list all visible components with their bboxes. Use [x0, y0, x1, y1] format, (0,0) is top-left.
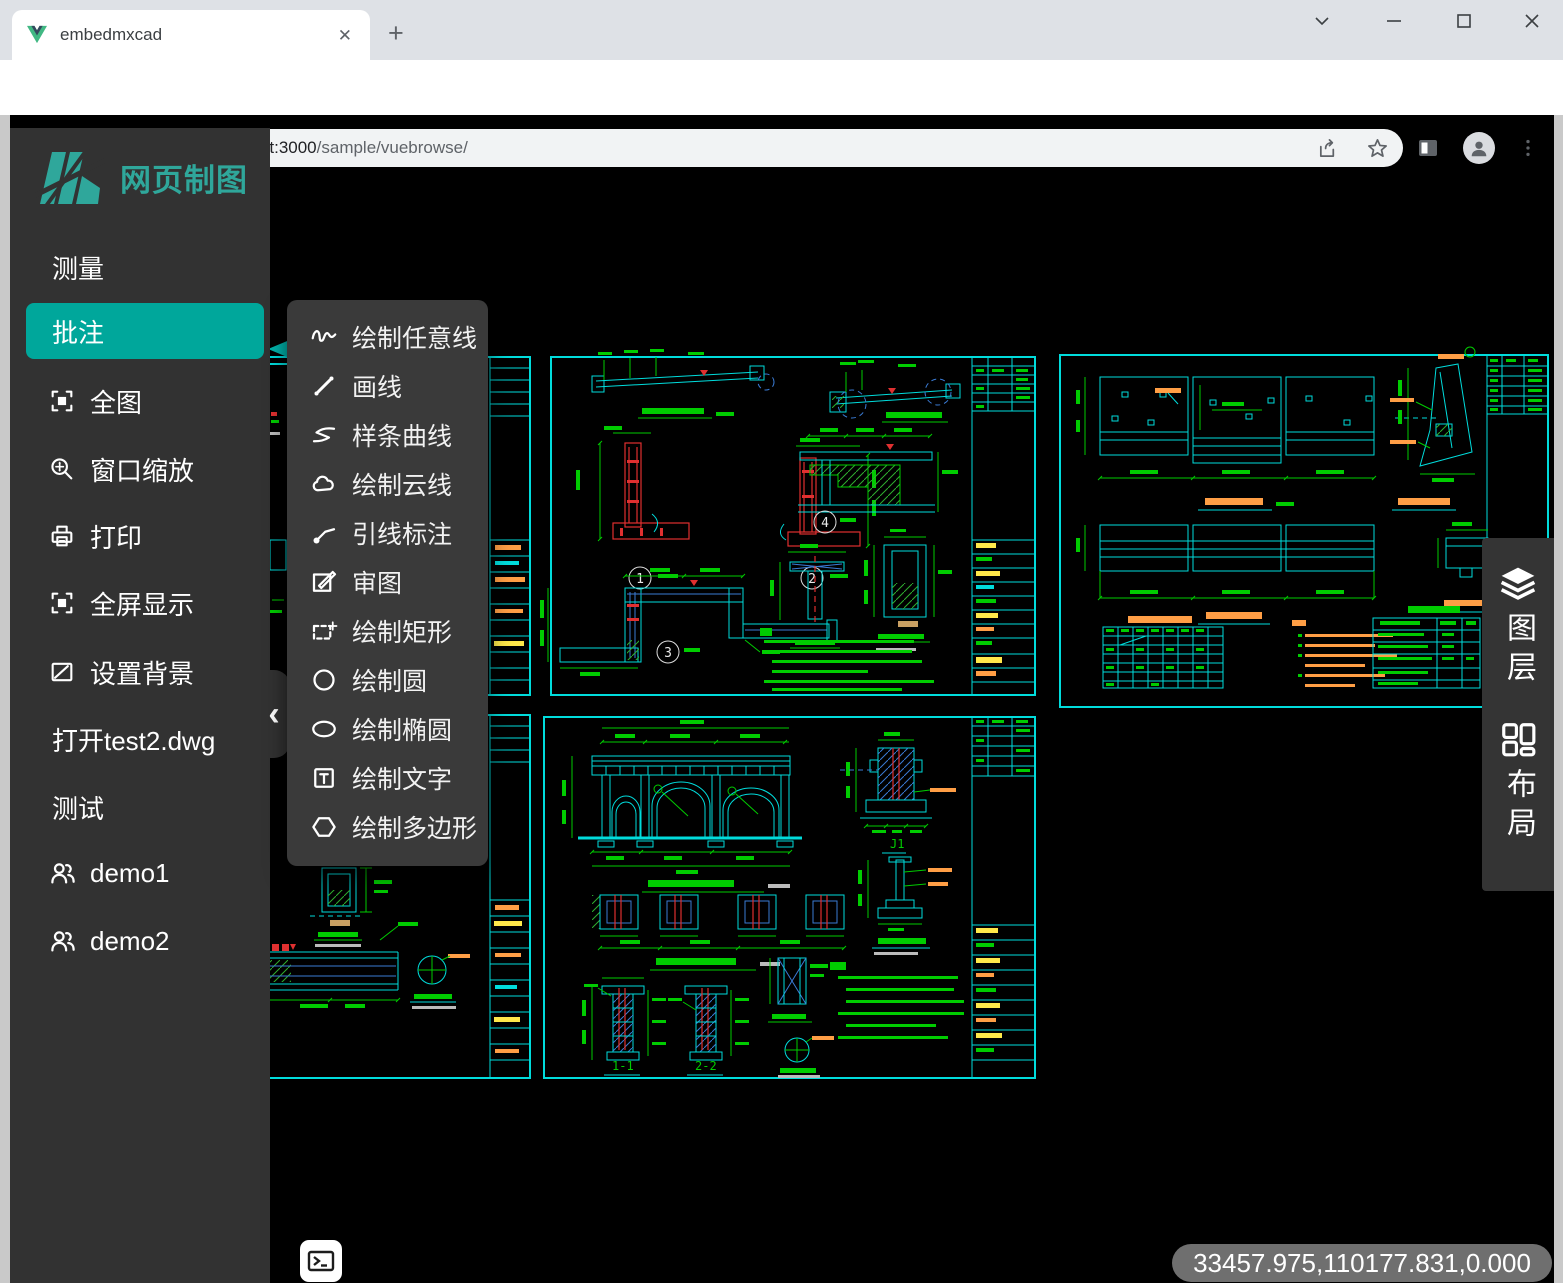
layout-panel-button[interactable]: 布局 [1499, 720, 1537, 846]
sidebar-item-measure[interactable]: 测量 [26, 243, 264, 291]
menu-item-draw-circle[interactable]: 绘制圆 [287, 655, 488, 704]
review-drawing-icon [309, 567, 339, 597]
menu-item-revision-cloud[interactable]: 绘制云线 [287, 459, 488, 508]
menu-item-draw-ellipse[interactable]: 绘制椭圆 [287, 704, 488, 753]
fullscreen-frame-icon [48, 386, 78, 416]
sidebar-collapse-button[interactable]: ‹ [258, 670, 290, 758]
menu-item-draw-rectangle[interactable]: 绘制矩形 [287, 606, 488, 655]
sidebar-item-full-view[interactable]: 全图 [26, 377, 264, 425]
sidebar-item-demo1[interactable]: demo1 [26, 849, 264, 897]
layers-panel-button[interactable]: 图层 [1498, 566, 1538, 690]
sidebar-item-fullscreen[interactable]: 全屏显示 [26, 579, 264, 627]
sidebar-item-annotate[interactable]: 批注 [26, 303, 264, 359]
sidebar: 网页制图 测量 批注 全图 窗口缩放 打印 全屏显示 设置背景 打开 [10, 128, 270, 1283]
layers-icon [1498, 566, 1538, 602]
polygon-icon [309, 812, 339, 842]
users-icon [48, 858, 78, 888]
sidebar-item-set-background[interactable]: 设置背景 [26, 648, 264, 696]
line-icon [309, 371, 339, 401]
command-line-button[interactable] [300, 1240, 342, 1282]
coordinate-readout: 33457.975,110177.831,0.000 [1172, 1244, 1552, 1282]
sheet-mid-bottom: 1-1 2-2 J1 [544, 717, 1035, 1078]
sidebar-item-zoom-window[interactable]: 窗口缩放 [26, 445, 264, 493]
users-icon [48, 926, 78, 956]
menu-item-draw-line[interactable]: 画线 [287, 361, 488, 410]
menu-item-spline[interactable]: 样条曲线 [287, 410, 488, 459]
zoom-window-icon [48, 454, 78, 484]
annotate-tools-menu: 绘制任意线 画线 样条曲线 绘制云线 引线标注 审图 绘制矩形 [287, 300, 488, 866]
circle-icon [309, 665, 339, 695]
callout-1: 1 [636, 572, 644, 587]
app-logo-text: 网页制图 [120, 155, 248, 200]
callout-3: 3 [664, 646, 672, 661]
leader-annotation-icon [309, 518, 339, 548]
freehand-line-icon [309, 322, 339, 352]
mxcad-logo-icon [32, 146, 108, 208]
terminal-icon [307, 1249, 335, 1273]
section-label-2-2: 2-2 [695, 1059, 717, 1073]
menu-item-review-drawing[interactable]: 审图 [287, 557, 488, 606]
menu-item-draw-text[interactable]: 绘制文字 [287, 753, 488, 802]
fullscreen-frame-icon [48, 588, 78, 618]
background-image-icon [48, 657, 78, 687]
menu-item-leader-annotation[interactable]: 引线标注 [287, 508, 488, 557]
menu-item-draw-polygon[interactable]: 绘制多边形 [287, 802, 488, 851]
sheet-right [1060, 347, 1548, 707]
rectangle-icon [309, 616, 339, 646]
ellipse-icon [309, 714, 339, 744]
layout-icon [1499, 720, 1537, 758]
callout-4: 4 [821, 516, 829, 531]
sidebar-item-open-test2[interactable]: 打开test2.dwg [26, 715, 264, 763]
printer-icon [48, 521, 78, 551]
right-dock-panel: 图层 布局 [1482, 538, 1554, 891]
chevron-left-icon: ‹ [268, 695, 279, 734]
menu-item-freehand-line[interactable]: 绘制任意线 [287, 312, 488, 361]
cloud-line-icon [309, 469, 339, 499]
section-label-1-1: 1-1 [612, 1059, 634, 1073]
app-logo: 网页制图 [32, 146, 248, 208]
sidebar-item-test[interactable]: 测试 [26, 783, 264, 831]
spline-icon [309, 420, 339, 450]
text-icon [309, 763, 339, 793]
sheet-mid-top: 1 2 4 [540, 349, 1035, 695]
section-label-j1: J1 [890, 837, 904, 851]
sidebar-item-print[interactable]: 打印 [26, 512, 264, 560]
sidebar-item-demo2[interactable]: demo2 [26, 917, 264, 965]
